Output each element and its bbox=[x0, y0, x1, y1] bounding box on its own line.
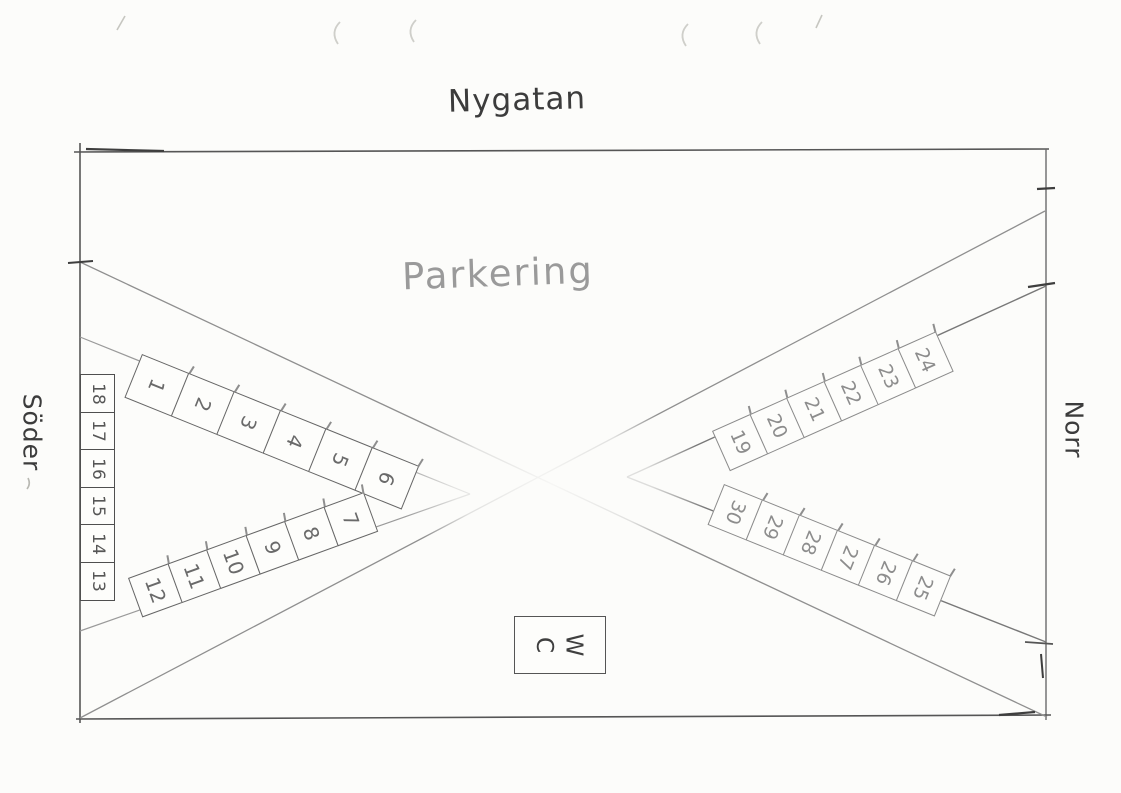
parking-lot-sketch: Nygatan Parkering Söder Norr 1 2 3 4 5 6… bbox=[0, 0, 1121, 793]
parking-space-number: 30 bbox=[721, 497, 750, 528]
parking-space-number: 14 bbox=[87, 533, 107, 555]
wc-letter-w: W bbox=[560, 634, 586, 657]
pencil-artifact bbox=[756, 22, 762, 44]
parking-space-number: 4 bbox=[281, 431, 308, 452]
parking-space-number: 29 bbox=[758, 512, 787, 543]
parking-space-number: 20 bbox=[762, 411, 792, 442]
parking-space-number: 18 bbox=[87, 383, 107, 405]
parking-space-number: 13 bbox=[87, 570, 107, 592]
parking-space-number: 2 bbox=[189, 393, 216, 414]
parking-space-number: 15 bbox=[87, 495, 107, 517]
wc-letter-c: C bbox=[531, 637, 557, 653]
lot-edge-top bbox=[74, 149, 1049, 152]
parking-space-number: 12 bbox=[140, 574, 171, 606]
parking-space-number: 5 bbox=[327, 449, 354, 470]
parking-space-number: 21 bbox=[799, 394, 829, 425]
parking-space-number: 22 bbox=[836, 378, 866, 409]
parking-space-number: 24 bbox=[910, 345, 940, 376]
parking-space-number: 28 bbox=[796, 527, 825, 558]
parking-space-number: 9 bbox=[259, 538, 286, 558]
tick-right-mid bbox=[1028, 283, 1055, 287]
parking-space-number: 27 bbox=[833, 542, 862, 573]
area-label-parkering: Parkering bbox=[401, 249, 594, 299]
tick-right-lower bbox=[1041, 654, 1043, 678]
parking-space-number: 25 bbox=[908, 573, 937, 604]
parking-space-number: 11 bbox=[179, 560, 210, 592]
parking-space-number: 1 bbox=[143, 375, 170, 396]
tick-baseline-end bbox=[1025, 642, 1053, 644]
parking-space-number: 16 bbox=[87, 458, 107, 480]
parking-space-number: 8 bbox=[298, 524, 325, 544]
pencil-artifact bbox=[117, 16, 125, 30]
pencil-artifact bbox=[410, 20, 416, 42]
parking-space-number: 19 bbox=[725, 427, 755, 458]
parking-column-18-13: 18 17 16 15 14 13 bbox=[80, 374, 115, 601]
street-label-nygatan: Nygatan bbox=[448, 80, 587, 120]
parking-space: 16 bbox=[80, 449, 115, 488]
tick-right-upper bbox=[1037, 188, 1055, 189]
tick-left-diag-start bbox=[68, 261, 93, 263]
side-label-norr: Norr bbox=[1060, 370, 1089, 490]
parking-space-number: 17 bbox=[87, 420, 107, 442]
pencil-artifact bbox=[816, 15, 822, 28]
parking-space: 15 bbox=[80, 487, 115, 526]
pencil-artifact bbox=[682, 24, 688, 46]
parking-space: 17 bbox=[80, 412, 115, 451]
lot-edge-bottom bbox=[76, 715, 1051, 719]
parking-space-number: 3 bbox=[235, 412, 262, 433]
parking-space-number: 7 bbox=[337, 509, 364, 529]
tick-topleft bbox=[86, 149, 164, 151]
parking-space: 18 bbox=[80, 374, 115, 413]
parking-space: 13 bbox=[80, 562, 115, 601]
parking-space-number: 6 bbox=[373, 468, 400, 489]
parking-space-number: 26 bbox=[871, 558, 900, 589]
parking-space-number: 23 bbox=[873, 361, 903, 392]
wc-sign-box: W C bbox=[514, 616, 606, 674]
pencil-artifact bbox=[334, 22, 340, 44]
parking-space: 14 bbox=[80, 524, 115, 563]
parking-space-number: 10 bbox=[218, 546, 249, 578]
side-label-soder: Söder bbox=[18, 373, 47, 493]
